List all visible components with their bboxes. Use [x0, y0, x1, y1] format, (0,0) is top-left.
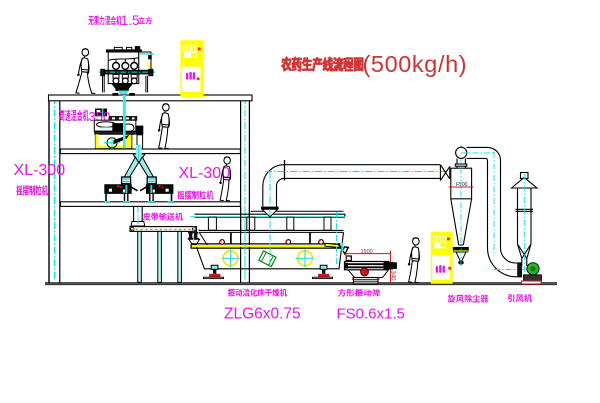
svg-text:1.5: 1.5	[121, 13, 140, 28]
svg-text:340: 340	[389, 271, 395, 282]
svg-text:ZLG6x0.75: ZLG6x0.75	[224, 306, 301, 323]
svg-text:F500: F500	[456, 182, 468, 188]
svg-text:(500kg/h): (500kg/h)	[363, 51, 468, 77]
svg-text:1500: 1500	[361, 249, 373, 255]
svg-text:XL-300: XL-300	[14, 162, 66, 179]
svg-text:FS0.6x1.5: FS0.6x1.5	[337, 306, 405, 323]
